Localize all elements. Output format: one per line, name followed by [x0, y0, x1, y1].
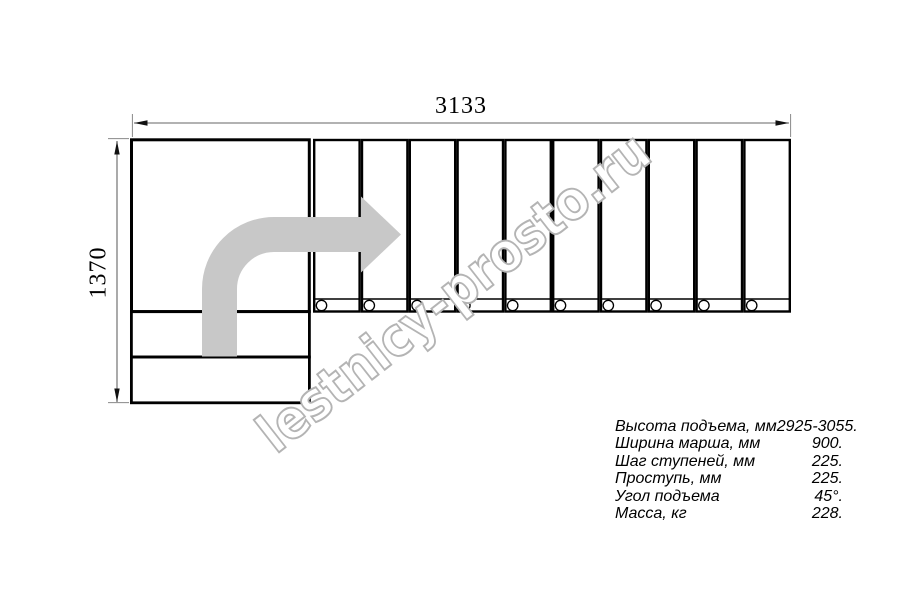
tread-bolt-circle	[364, 300, 374, 310]
spec-label: Проступь, мм	[615, 470, 721, 487]
tread-outline	[744, 140, 789, 312]
spec-value: 45°.	[814, 488, 843, 505]
width-dimension-arrow-left	[134, 120, 148, 125]
tread-bolt-circle	[747, 300, 757, 310]
height-dimension-arrow-top	[114, 141, 119, 155]
spec-row: Высота подъема, мм 2925-3055.	[615, 418, 843, 435]
tread-bolt-circle	[603, 300, 613, 310]
height-dimension-label: 1370	[86, 223, 113, 323]
spec-value: 225.	[812, 453, 843, 470]
spec-label: Масса, кг	[615, 505, 687, 522]
tread-outline	[697, 140, 742, 312]
spec-table: Высота подъема, мм 2925-3055. Ширина мар…	[615, 418, 843, 522]
spec-row: Шаг ступеней, мм 225.	[615, 453, 843, 470]
spec-value: 900.	[812, 435, 843, 452]
height-dimension-arrow-bottom	[114, 389, 119, 403]
width-dimension-arrow-right	[776, 120, 790, 125]
tread-bolt-circle	[651, 300, 661, 310]
spec-row: Масса, кг 228.	[615, 505, 843, 522]
spec-label: Высота подъема, мм	[615, 418, 777, 435]
tread-bolt-circle	[555, 300, 565, 310]
width-dimension-label: 3133	[411, 93, 511, 120]
spec-row: Угол подъема 45°.	[615, 488, 843, 505]
spec-row: Ширина марша, мм 900.	[615, 435, 843, 452]
tread-bolt-circle	[316, 300, 326, 310]
direction-arrow-head	[361, 197, 401, 273]
spec-label: Угол подъема	[615, 488, 720, 505]
tread-bolt-circle	[508, 300, 518, 310]
spec-value: 225.	[812, 470, 843, 487]
spec-row: Проступь, мм 225.	[615, 470, 843, 487]
spec-value: 2925-3055.	[777, 418, 858, 435]
direction-arrow-shaft	[220, 235, 362, 357]
spec-label: Ширина марша, мм	[615, 435, 760, 452]
staircase-drawing-page: lestnicy-prosto.ru 3133 1370 Высота подъ…	[0, 0, 900, 600]
spec-value: 228.	[812, 505, 843, 522]
spec-label: Шаг ступеней, мм	[615, 453, 755, 470]
tread-bolt-circle	[699, 300, 709, 310]
